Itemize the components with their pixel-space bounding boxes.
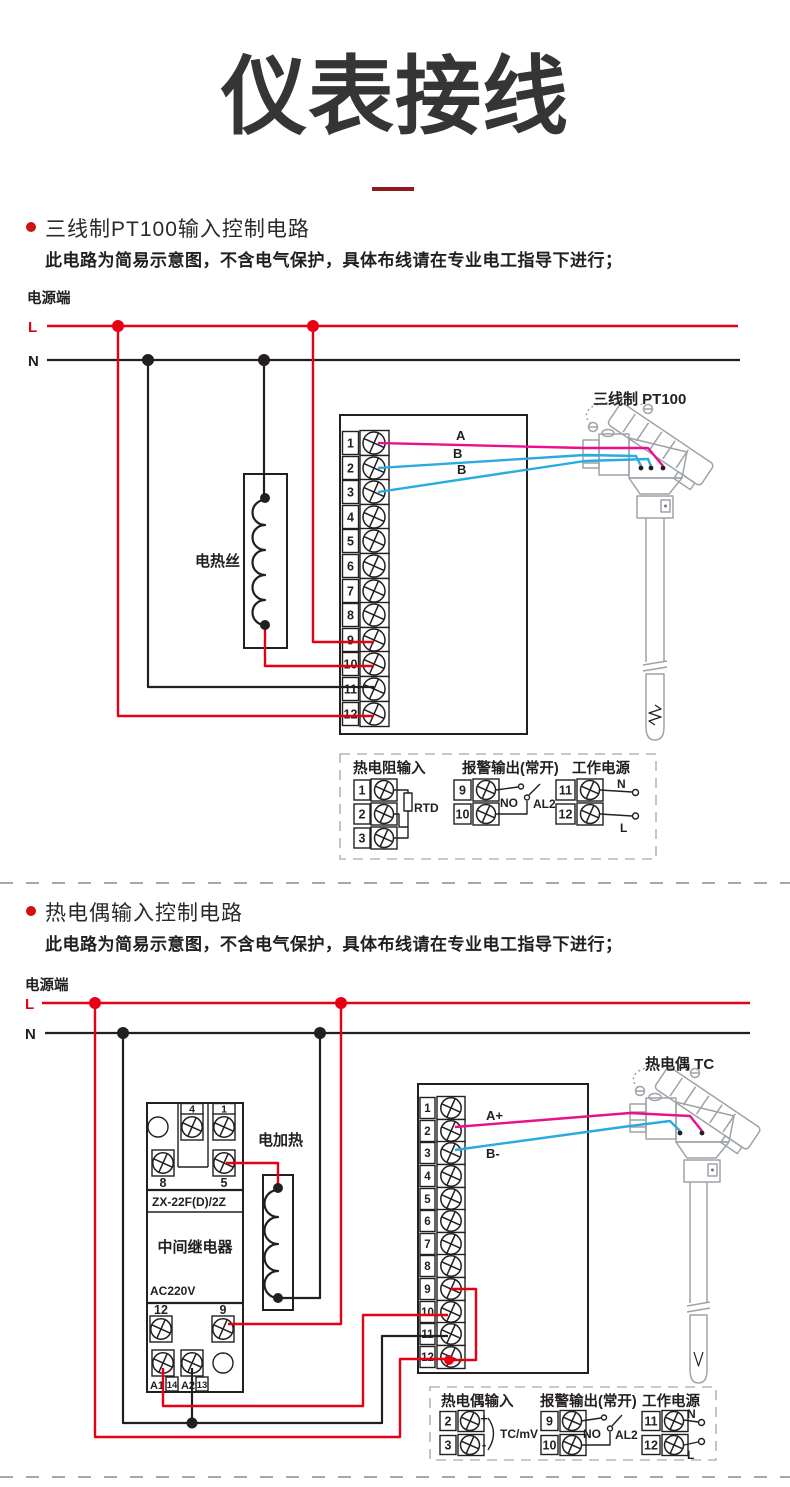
svg-text:3: 3 (359, 832, 366, 846)
svg-text:11: 11 (644, 1415, 657, 1429)
section-divider (0, 882, 790, 884)
terminal-row: 11 (420, 1321, 465, 1348)
wire-label-a: A (456, 428, 466, 443)
svg-text:10: 10 (344, 658, 358, 672)
page: 仪表接线 三线制PT100输入控制电路 此电路为简易示意图，不含电气保护，具体布… (0, 0, 790, 1487)
svg-text:报警输出(常开): 报警输出(常开) (462, 759, 559, 777)
l-label: L (687, 1448, 694, 1462)
tc-probe: 热电偶 TC (630, 1055, 761, 1383)
n-label: N (687, 1407, 696, 1421)
svg-text:2: 2 (445, 1415, 452, 1429)
svg-text:8: 8 (160, 1176, 167, 1190)
terminal-row: 12 (420, 1344, 465, 1371)
svg-text:1: 1 (424, 1103, 431, 1115)
svg-text:热电偶输入: 热电偶输入 (441, 1392, 514, 1410)
terminal-row: 1 (420, 1095, 465, 1122)
tc-mv-label: TC/mV (500, 1427, 538, 1441)
svg-text:6: 6 (424, 1216, 430, 1228)
power-rails-2: 电源端 L N (25, 976, 750, 1043)
svg-text:2: 2 (347, 462, 354, 476)
heater-2: 电加热 (258, 1131, 303, 1310)
section2-bullet-icon (26, 906, 36, 916)
heater-label: 电加热 (258, 1131, 303, 1149)
svg-text:12: 12 (644, 1439, 658, 1453)
terminal-row: 6 (343, 551, 390, 580)
svg-text:2: 2 (424, 1126, 430, 1138)
no-label: NO (500, 796, 518, 810)
svg-text:12: 12 (344, 708, 358, 722)
svg-text:5: 5 (347, 535, 354, 549)
power-terminal-label: 电源端 (25, 976, 69, 994)
line-l-label: L (28, 319, 37, 336)
line-n-label: N (25, 1026, 36, 1043)
rtd-element-icon (649, 705, 661, 725)
terminal-row: 2 (420, 1118, 465, 1145)
svg-text:7: 7 (424, 1239, 430, 1251)
svg-text:8: 8 (347, 609, 354, 623)
terminal-row: 6 (420, 1208, 465, 1235)
title-underline (372, 187, 414, 191)
diagram-pt100-circuit: 电源端 L N 电热丝 1 2 3 4 5 6 7 8 9 10 11 1 (0, 280, 790, 880)
wire-label-b2: B (457, 462, 466, 477)
svg-text:工作电源: 工作电源 (572, 759, 630, 777)
line-l-label: L (25, 996, 34, 1013)
svg-text:9: 9 (424, 1284, 430, 1296)
svg-text:5: 5 (424, 1194, 431, 1206)
wire-label-b-minus: B- (486, 1146, 500, 1161)
terminal-row: 7 (420, 1231, 465, 1258)
probe-label: 热电偶 TC (645, 1055, 714, 1073)
svg-text:9: 9 (546, 1415, 553, 1429)
terminal-row: 4 (420, 1163, 465, 1190)
al2-label: AL2 (533, 797, 556, 811)
svg-text:14: 14 (167, 1380, 178, 1391)
relay-name: 中间继电器 (157, 1238, 233, 1256)
svg-text:8: 8 (424, 1261, 431, 1273)
power-terminal-label: 电源端 (27, 289, 71, 307)
n-label: N (617, 777, 626, 791)
svg-text:6: 6 (347, 560, 354, 574)
heater-1: 电热丝 (195, 474, 287, 648)
svg-text:1: 1 (359, 784, 366, 798)
terminal-row: 3 (420, 1140, 465, 1167)
rtd-label: RTD (414, 801, 439, 815)
section1-heading: 三线制PT100输入控制电路 (45, 213, 310, 243)
power-rails-1: 电源端 L N (27, 289, 740, 370)
diagram-tc-circuit: 电源端 L N 4 1 8 5 ZX-22F(D)/2Z 中间继电器 AC220… (0, 960, 790, 1487)
page-title: 仪表接线 (0, 54, 790, 140)
legend2-tc-input: 热电偶输入 2 3 + - TC/mV (440, 1392, 538, 1458)
svg-text:9: 9 (347, 634, 354, 648)
tc-junction-icon (694, 1352, 703, 1366)
svg-text:4: 4 (424, 1171, 431, 1183)
svg-text:9: 9 (220, 1303, 227, 1317)
pt100-probe: 三线制 PT100 (583, 390, 714, 740)
terminal-row: 9 (343, 625, 390, 654)
terminal-row: 12 (343, 699, 390, 728)
terminal-row: 8 (420, 1253, 465, 1280)
svg-text:12: 12 (154, 1303, 168, 1317)
terminal-row: 5 (420, 1186, 465, 1213)
line-n-label: N (28, 353, 39, 370)
terminal-row: 7 (343, 576, 390, 605)
svg-text:2: 2 (359, 808, 366, 822)
heater-label: 电热丝 (195, 552, 240, 570)
section2-note: 此电路为简易示意图，不含电气保护，具体布线请在专业电工指导下进行； (45, 930, 623, 955)
terminal-row: 5 (343, 526, 390, 555)
svg-text:9: 9 (459, 784, 466, 798)
wire-label-b1: B (453, 446, 462, 461)
wire-label-a-plus: A+ (486, 1108, 503, 1123)
minus-label: - (482, 1437, 486, 1452)
svg-text:10: 10 (421, 1307, 434, 1319)
svg-text:3: 3 (347, 486, 354, 500)
svg-text:热电阻输入: 热电阻输入 (353, 759, 426, 777)
svg-text:10: 10 (543, 1439, 557, 1453)
legend1-alarm-output: 报警输出(常开) 9 10 NO AL2 (454, 759, 559, 827)
svg-text:1: 1 (347, 437, 354, 451)
relay: 4 1 8 5 ZX-22F(D)/2Z 中间继电器 AC220V 12 9 A… (147, 1103, 243, 1392)
l-label: L (620, 821, 627, 835)
probe-label: 三线制 PT100 (593, 390, 686, 408)
plus-label: + (480, 1411, 488, 1426)
svg-text:4: 4 (347, 511, 354, 525)
al2-label: AL2 (615, 1428, 638, 1442)
svg-text:7: 7 (347, 585, 354, 599)
svg-text:3: 3 (424, 1148, 430, 1160)
legend1-rtd-input: 热电阻输入 1 2 3 RTD (353, 759, 439, 851)
terminal-row: 11 (343, 674, 390, 703)
svg-text:10: 10 (456, 808, 470, 822)
svg-text:13: 13 (197, 1380, 208, 1391)
section1-note: 此电路为简易示意图，不含电气保护，具体布线请在专业电工指导下进行； (45, 246, 623, 271)
legend2-alarm-output: 报警输出(常开) 9 10 NO AL2 (540, 1392, 638, 1458)
svg-text:3: 3 (445, 1439, 452, 1453)
terminal-row: 10 (420, 1299, 465, 1326)
svg-text:报警输出(常开): 报警输出(常开) (540, 1392, 637, 1410)
legend1-working-power: 工作电源 11 12 N L (556, 759, 639, 835)
terminal-row: 10 (343, 649, 390, 678)
legend-1: 热电阻输入 1 2 3 RTD 报警输出(常开) 9 10 (340, 754, 656, 859)
relay-voltage: AC220V (150, 1284, 195, 1298)
section1-bullet-icon (26, 222, 36, 232)
svg-text:11: 11 (559, 784, 572, 798)
relay-model: ZX-22F(D)/2Z (152, 1195, 226, 1209)
section2-heading: 热电偶输入控制电路 (45, 897, 243, 927)
svg-text:12: 12 (559, 808, 573, 822)
legend-2: 热电偶输入 2 3 + - TC/mV 报警输出(常开) 9 10 (430, 1387, 716, 1462)
terminal-row: 4 (343, 502, 390, 531)
legend2-working-power: 工作电源 11 12 N L (642, 1392, 705, 1462)
svg-text:5: 5 (221, 1176, 228, 1190)
terminal-row: 8 (343, 600, 390, 629)
no-label: NO (583, 1427, 601, 1441)
svg-text:11: 11 (344, 683, 357, 697)
